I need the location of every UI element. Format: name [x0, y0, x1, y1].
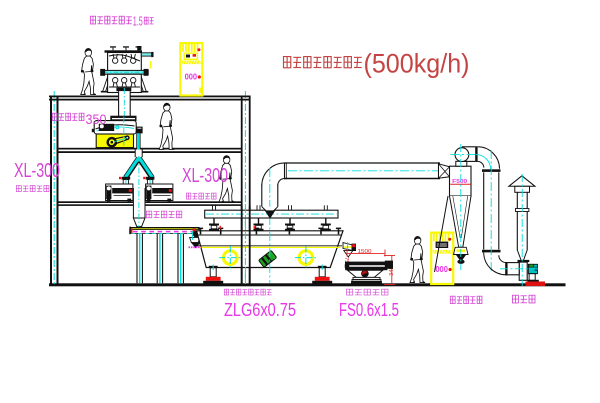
- svg-text:1.5: 1.5: [133, 15, 143, 29]
- svg-text:XL-300: XL-300: [182, 165, 228, 187]
- svg-text:(500kg/h): (500kg/h): [364, 49, 470, 79]
- svg-text:1500: 1500: [358, 249, 372, 255]
- svg-text:F500: F500: [452, 179, 467, 185]
- svg-text:FS0.6x1.5: FS0.6x1.5: [339, 300, 399, 320]
- svg-text:000: 000: [185, 72, 198, 82]
- svg-text:XL-300: XL-300: [14, 160, 60, 182]
- svg-text:000: 000: [435, 264, 448, 274]
- svg-text:350: 350: [86, 111, 107, 127]
- svg-text:ZLG6x0.75: ZLG6x0.75: [224, 300, 296, 320]
